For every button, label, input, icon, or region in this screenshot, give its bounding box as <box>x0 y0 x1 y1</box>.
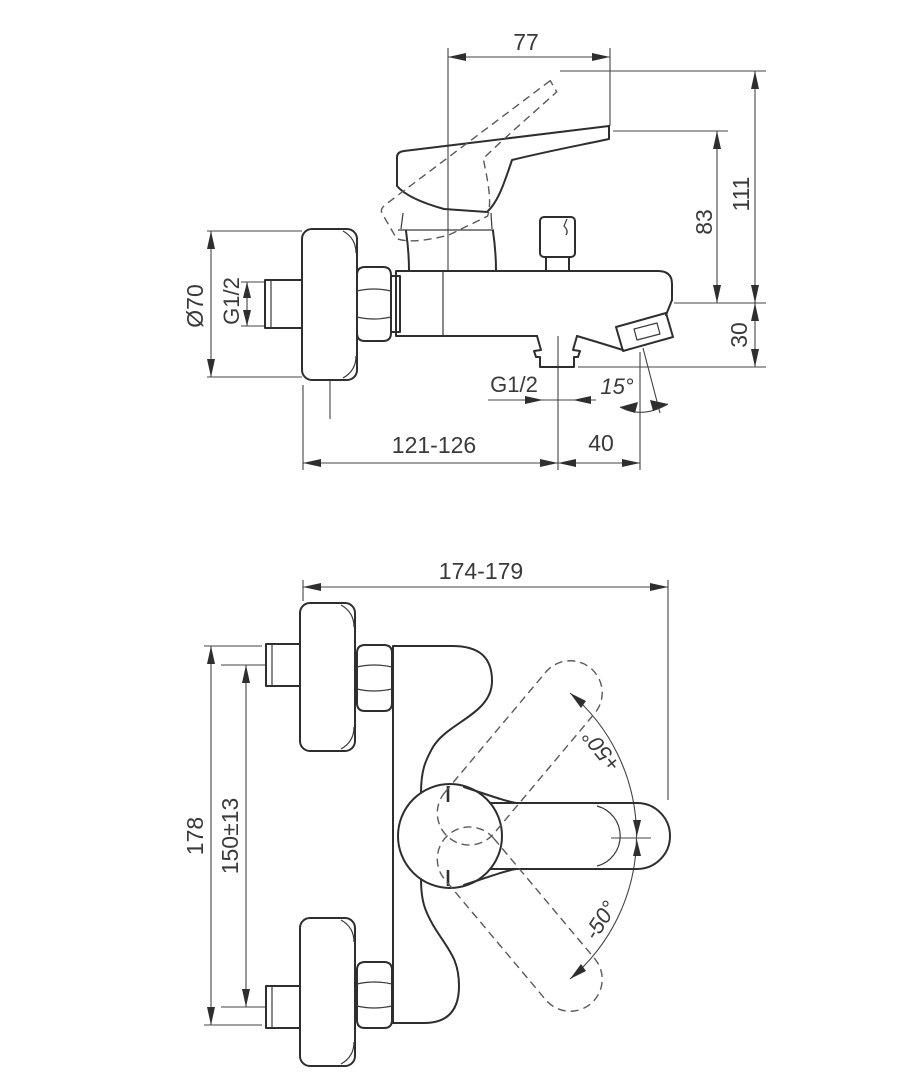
dim-depth-overall: 174-179 <box>439 558 523 584</box>
faucet-body-plan <box>393 646 492 1023</box>
handle-blade-inner-end <box>597 806 620 866</box>
dim-handle-swing-down: -50° <box>579 896 622 944</box>
escutcheon-bottom-plan <box>300 918 355 1066</box>
dimension-lines-side <box>211 57 755 463</box>
inlet-nipple-top-plan <box>266 644 300 686</box>
hex-nut-top-facets <box>357 665 392 691</box>
diverter-stem <box>546 257 569 271</box>
shower-outlet <box>534 336 580 367</box>
dimension-lines-plan <box>211 587 668 1025</box>
dim-height-overall: 111 <box>728 177 754 212</box>
faucet-body-side <box>396 271 672 350</box>
dim-inlet-thread: G1/2 <box>219 277 244 325</box>
dim-escutcheon-diameter: Ø70 <box>182 284 208 327</box>
dim-wall-to-outlet: 121-126 <box>392 432 476 458</box>
dim-handle-projection: 77 <box>513 29 539 55</box>
dim-handle-swing-up: +50° <box>577 725 626 777</box>
hex-nut-facets-side <box>357 289 391 319</box>
dim-spout-drop: 30 <box>726 322 752 348</box>
escutcheon-top-highlight <box>341 605 354 749</box>
inlet-nipple-bottom-plan <box>266 986 300 1028</box>
dim-height-handle: 83 <box>691 209 717 235</box>
dim-outlet-to-spout-tip: 40 <box>588 430 614 456</box>
side-view: 77 111 83 30 Ø70 G1/2 G1/2 15° 121-126 4… <box>182 29 766 470</box>
escutcheon-side <box>302 229 357 380</box>
hex-nut-bottom-plan <box>357 962 392 1028</box>
escutcheon-edge-highlight <box>343 231 356 378</box>
dim-connection-centers: 150±13 <box>217 798 243 875</box>
dim-spout-angle: 15° <box>600 374 633 399</box>
spout-aerator <box>616 313 673 351</box>
top-view: 174-179 178 150±13 +50° -50° <box>182 558 670 1066</box>
dimension-arrows-side <box>207 53 759 467</box>
hex-nut-side <box>357 267 391 341</box>
faucet-dimension-drawing: 77 111 83 30 Ø70 G1/2 G1/2 15° 121-126 4… <box>0 0 899 1078</box>
technical-drawing-page: 77 111 83 30 Ø70 G1/2 G1/2 15° 121-126 4… <box>0 0 899 1078</box>
handle-lever-raised-dashed <box>367 81 594 261</box>
dim-outlet-thread: G1/2 <box>490 372 538 397</box>
handle-collar <box>398 213 494 230</box>
hex-nut-top-plan <box>357 645 392 711</box>
spout-aerator-inner <box>634 323 660 340</box>
handle-grip-plan <box>398 784 502 888</box>
escutcheon-bottom-highlight <box>341 920 354 1064</box>
diverter-knob <box>540 217 575 257</box>
handle-lever-side <box>397 126 609 212</box>
dim-span-overall: 178 <box>182 817 208 855</box>
extension-lines-side <box>207 48 766 470</box>
escutcheon-top-plan <box>300 603 355 751</box>
hex-nut-bottom-facets <box>357 982 392 1008</box>
diverter-knob-notch <box>564 219 567 235</box>
handle-blade-plan <box>490 803 670 869</box>
cartridge-neck <box>406 231 496 270</box>
